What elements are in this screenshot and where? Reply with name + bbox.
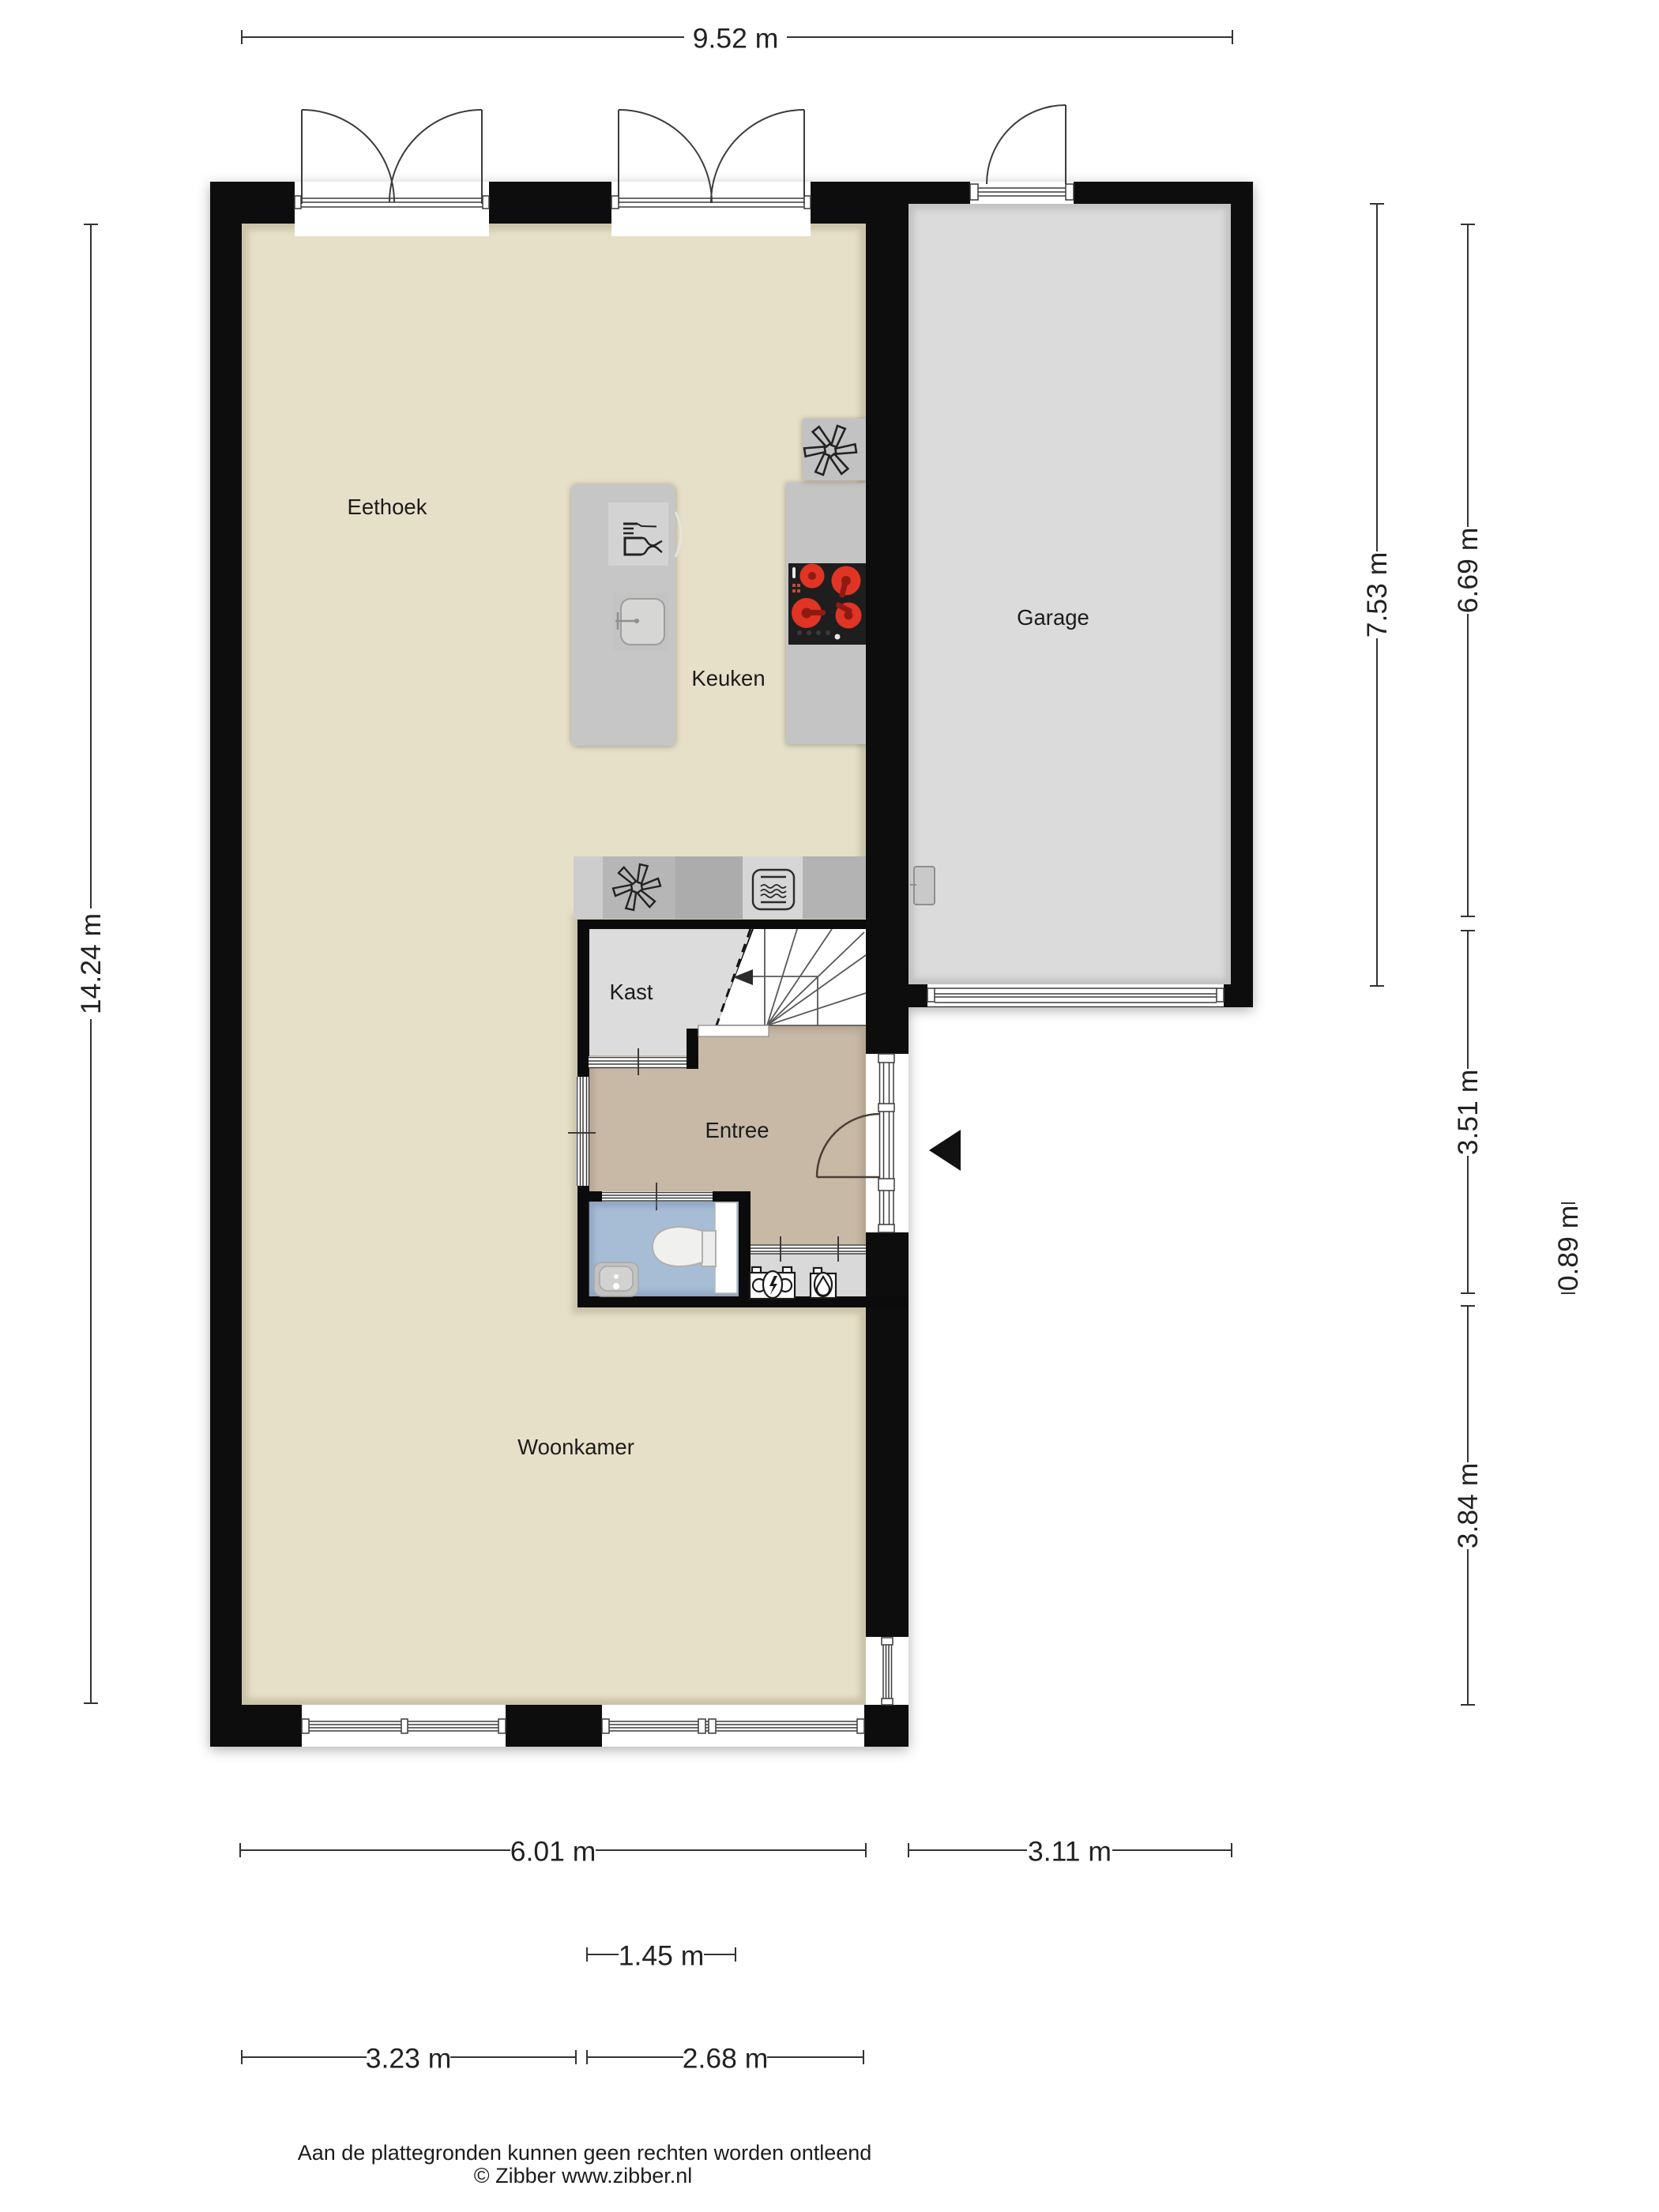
- svg-text:Aan de plattegronden kunnen ge: Aan de plattegronden kunnen geen rechten…: [298, 2141, 872, 2165]
- svg-text:Eethoek: Eethoek: [348, 495, 427, 519]
- svg-text:6.01 m: 6.01 m: [510, 1836, 596, 1868]
- svg-text:Woonkamer: Woonkamer: [517, 1435, 634, 1459]
- svg-text:Keuken: Keuken: [691, 666, 765, 690]
- svg-text:9.52 m: 9.52 m: [693, 23, 779, 55]
- svg-text:3.11 m: 3.11 m: [1028, 1836, 1112, 1868]
- svg-text:2.68 m: 2.68 m: [683, 2043, 769, 2075]
- svg-text:Entree: Entree: [705, 1118, 769, 1142]
- svg-text:1.45 m: 1.45 m: [619, 1940, 705, 1972]
- svg-text:Kast: Kast: [609, 980, 653, 1004]
- svg-text:Garage: Garage: [1017, 605, 1089, 630]
- svg-text:0.89 m: 0.89 m: [1552, 1206, 1584, 1292]
- svg-text:6.69 m: 6.69 m: [1452, 528, 1484, 614]
- svg-text:7.53 m: 7.53 m: [1361, 552, 1393, 638]
- svg-text:3.23 m: 3.23 m: [366, 2043, 452, 2075]
- svg-text:3.84 m: 3.84 m: [1452, 1463, 1484, 1549]
- svg-text:14.24 m: 14.24 m: [75, 913, 107, 1014]
- svg-text:© Zibber www.zibber.nl: © Zibber www.zibber.nl: [474, 2164, 693, 2188]
- svg-text:3.51 m: 3.51 m: [1452, 1070, 1484, 1156]
